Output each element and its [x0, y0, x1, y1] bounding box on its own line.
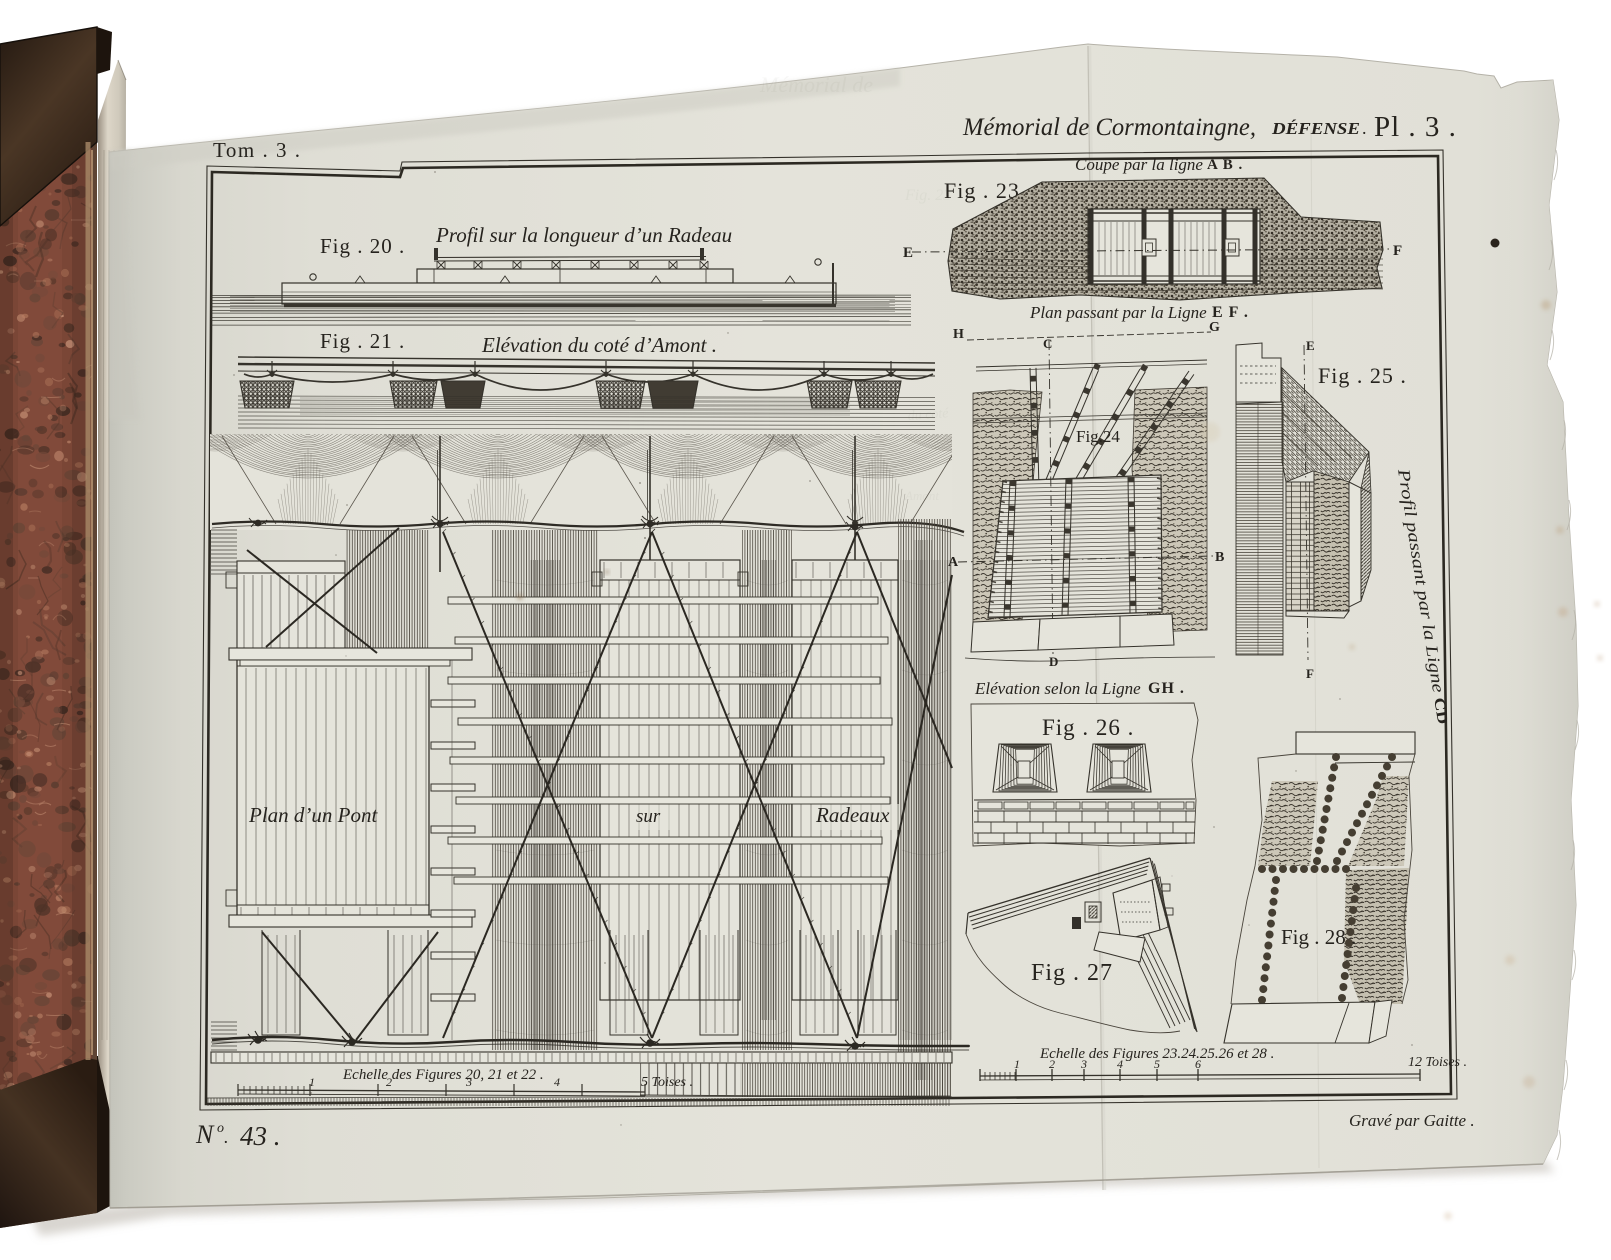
svg-text:D: D: [1049, 654, 1058, 669]
svg-text:Fig . 20 .: Fig . 20 .: [320, 234, 405, 258]
svg-text:du coté: du coté: [907, 406, 950, 424]
svg-text:DÉFENSE: DÉFENSE: [1271, 119, 1360, 138]
svg-text:Fig.24: Fig.24: [1076, 427, 1120, 446]
svg-text:H: H: [953, 327, 964, 342]
svg-text:3: 3: [1080, 1057, 1087, 1071]
svg-text:F: F: [1393, 243, 1402, 259]
svg-text:A: A: [948, 555, 959, 570]
svg-text:Fig . 28 .: Fig . 28 .: [1281, 925, 1356, 949]
svg-text:Tom . 3 .: Tom . 3 .: [213, 138, 301, 162]
svg-text:43 .: 43 .: [240, 1121, 281, 1151]
svg-text:5 Toises .: 5 Toises .: [641, 1075, 693, 1090]
svg-text:Plan d’un Pont: Plan d’un Pont: [248, 803, 378, 827]
svg-text:Radeaux: Radeaux: [815, 803, 890, 827]
svg-text:E: E: [1306, 338, 1315, 353]
svg-text:A B .: A B .: [1207, 157, 1243, 173]
svg-text:Fig . 27: Fig . 27: [1031, 960, 1113, 986]
svg-text:12 Toises .: 12 Toises .: [1408, 1055, 1467, 1070]
svg-text:F: F: [1306, 666, 1314, 681]
svg-text:Profil sur la longueur d’un Ra: Profil sur la longueur d’un Radeau: [435, 223, 732, 247]
svg-text:B: B: [1215, 550, 1224, 565]
svg-text:Fig. 23: Fig. 23: [904, 187, 951, 204]
svg-text:Plan passant par la Ligne: Plan passant par la Ligne: [1029, 303, 1207, 322]
svg-text:N: N: [195, 1120, 215, 1149]
svg-text:E F .: E F .: [1212, 304, 1249, 321]
svg-text:Echelle des Figures 20, 21 et: Echelle des Figures 20, 21 et 22 .: [342, 1067, 544, 1083]
svg-text:5: 5: [1154, 1057, 1160, 1071]
svg-text:C: C: [1043, 336, 1052, 351]
svg-text:Mémorial de: Mémorial de: [759, 72, 873, 97]
svg-text:Elévation du coté d’Amont .: Elévation du coté d’Amont .: [481, 333, 717, 357]
svg-text:4: 4: [554, 1075, 560, 1089]
svg-text:E: E: [903, 245, 913, 261]
svg-text:GH .: GH .: [1148, 680, 1185, 697]
svg-text:2: 2: [1049, 1057, 1055, 1071]
svg-text:2: 2: [386, 1075, 392, 1089]
svg-text:Gravé par Gaitte .: Gravé par Gaitte .: [1349, 1111, 1475, 1130]
svg-text:G: G: [1209, 320, 1220, 335]
svg-text:Fig . 21 .: Fig . 21 .: [320, 329, 405, 353]
svg-text:1: 1: [1014, 1057, 1020, 1071]
svg-text:Mémorial de Cormontaingne,: Mémorial de Cormontaingne,: [962, 114, 1256, 141]
svg-text:Coupe par la ligne: Coupe par la ligne: [1075, 155, 1203, 174]
svg-text:sur: sur: [636, 806, 661, 827]
svg-text:.: .: [224, 1127, 229, 1147]
svg-text:6: 6: [1195, 1057, 1201, 1071]
svg-text:3: 3: [465, 1075, 472, 1089]
svg-text:4: 4: [1117, 1057, 1123, 1071]
svg-text:Pl . 3 .: Pl . 3 .: [1374, 111, 1457, 143]
svg-text:Fig . 25 .: Fig . 25 .: [1318, 363, 1407, 388]
svg-text:.: .: [1362, 118, 1367, 138]
svg-text:Fig . 26 .: Fig . 26 .: [1042, 715, 1134, 740]
svg-text:Amont: Amont: [904, 488, 939, 503]
svg-text:o: o: [217, 1121, 224, 1136]
svg-text:Elévation selon la Ligne: Elévation selon la Ligne: [974, 679, 1141, 698]
